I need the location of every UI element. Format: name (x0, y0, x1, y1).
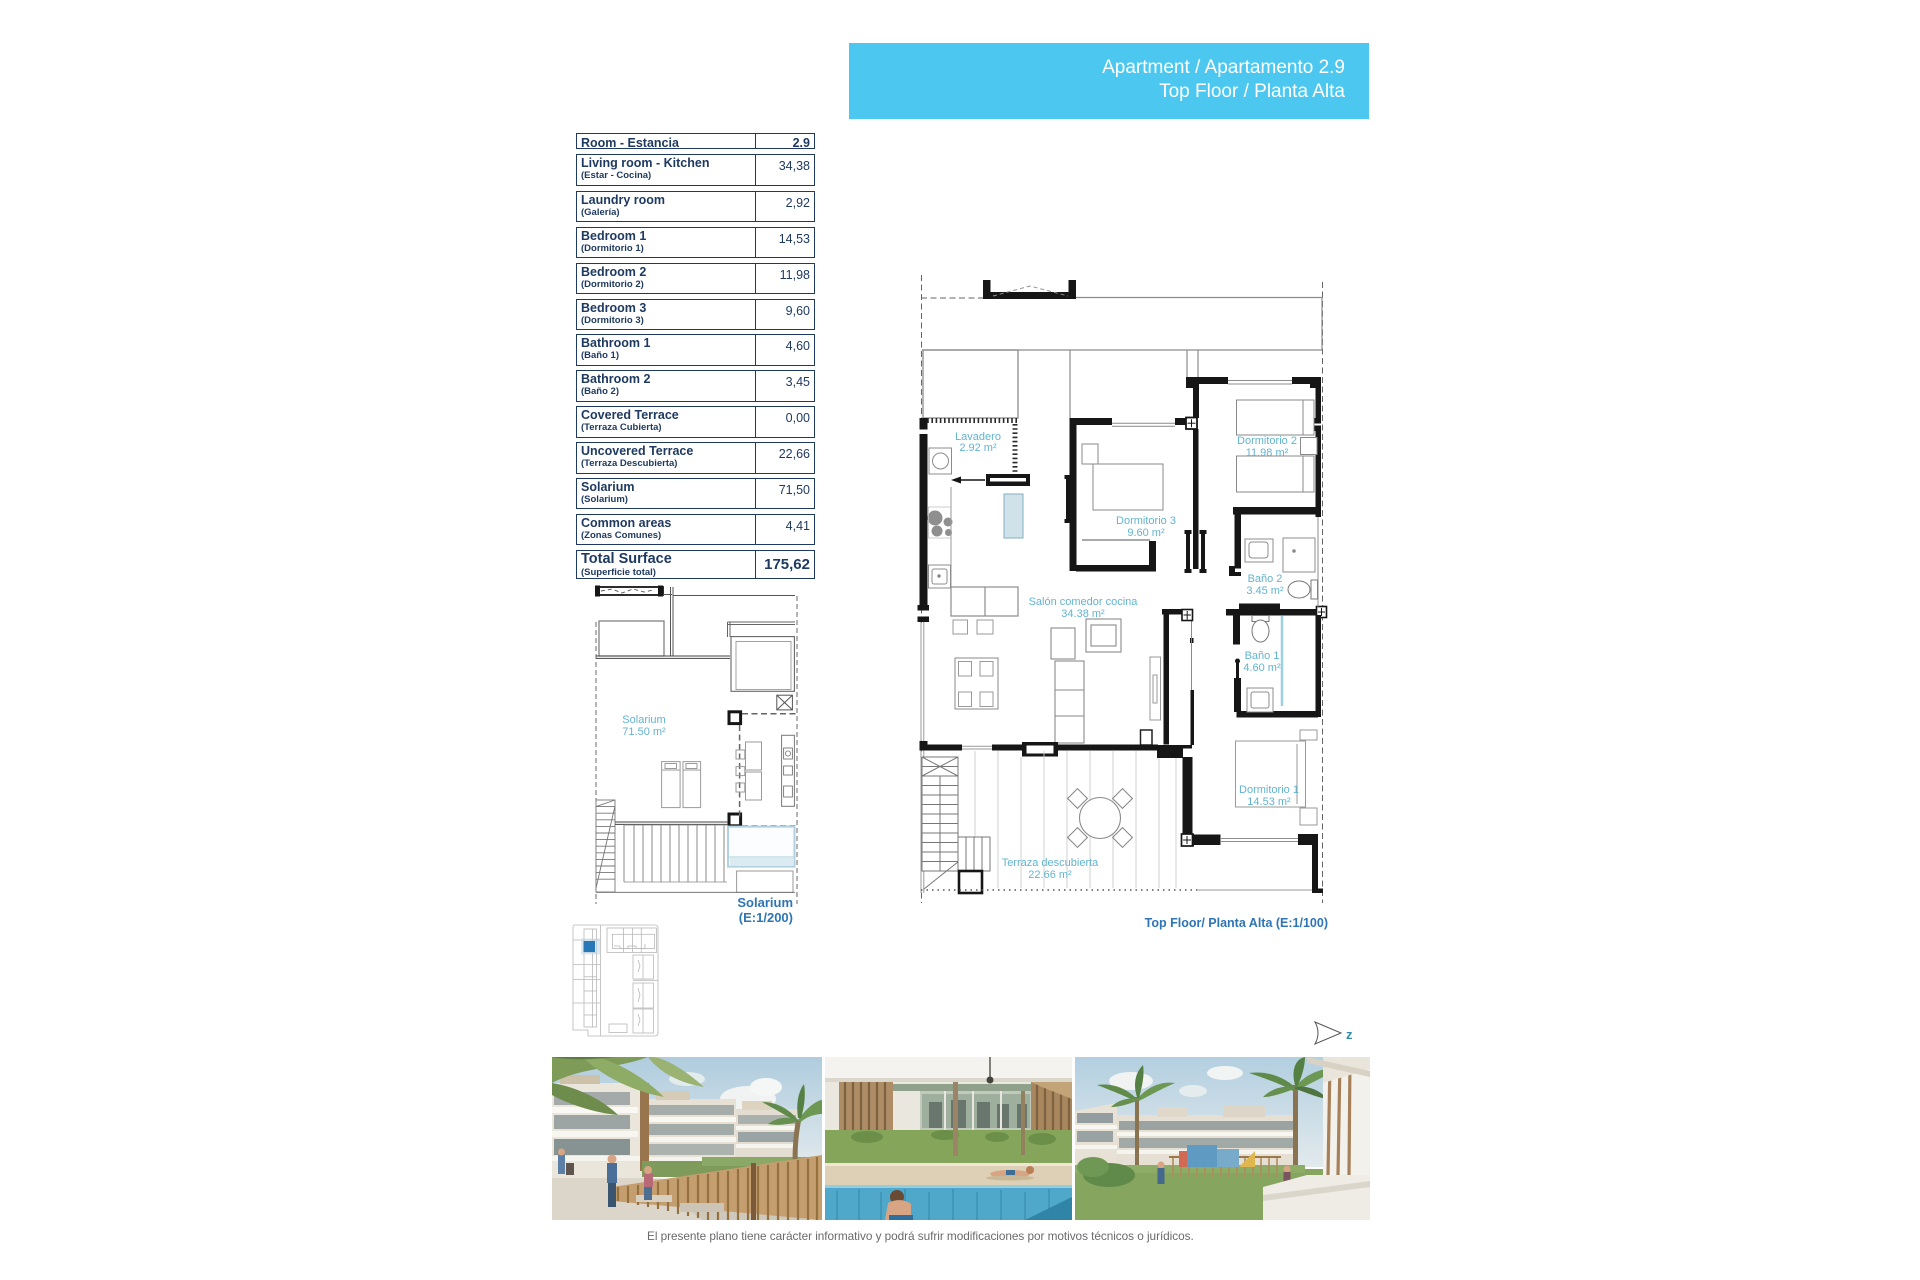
svg-text:Solarium: Solarium (622, 714, 665, 726)
svg-text:Dormitorio 3: Dormitorio 3 (1116, 515, 1176, 527)
svg-text:34.38 m²: 34.38 m² (1061, 608, 1105, 620)
svg-text:11.98 m²: 11.98 m² (1246, 447, 1289, 459)
svg-text:Baño 2: Baño 2 (1248, 573, 1283, 585)
svg-text:4.60 m²: 4.60 m² (1243, 662, 1281, 674)
svg-text:Dormitorio 2: Dormitorio 2 (1237, 435, 1297, 447)
svg-text:9.60 m²: 9.60 m² (1127, 527, 1165, 539)
svg-text:Dormitorio 1: Dormitorio 1 (1239, 784, 1299, 796)
svg-text:Baño 1: Baño 1 (1245, 650, 1280, 662)
svg-text:22.66 m²: 22.66 m² (1028, 869, 1072, 881)
svg-text:2.92 m²: 2.92 m² (959, 442, 997, 454)
svg-text:71.50 m²: 71.50 m² (622, 726, 666, 738)
svg-text:3.45 m²: 3.45 m² (1246, 585, 1284, 597)
svg-text:Salón comedor cocina: Salón comedor cocina (1029, 596, 1139, 608)
svg-text:Terraza descubierta: Terraza descubierta (1002, 857, 1099, 869)
svg-text:z: z (1346, 1027, 1353, 1042)
svg-text:14.53 m²: 14.53 m² (1247, 796, 1291, 808)
